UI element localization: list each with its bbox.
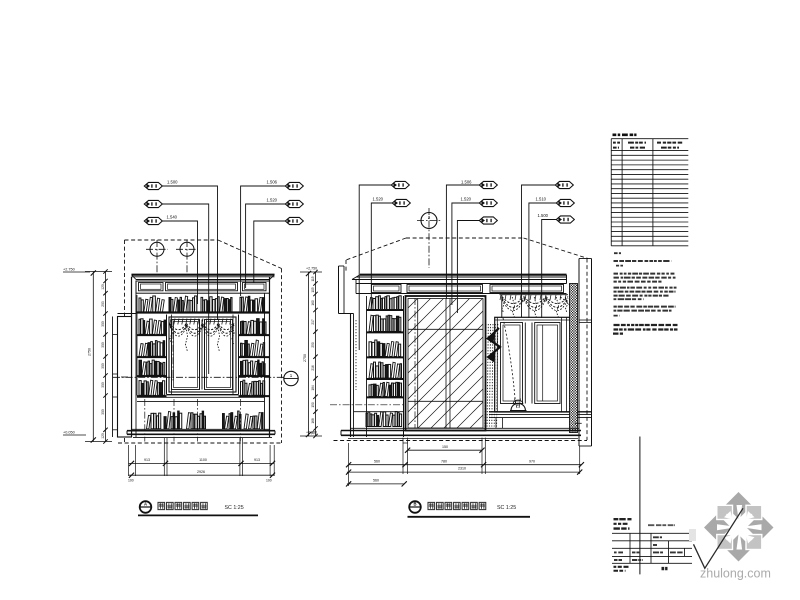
svg-text:2926: 2926 [197,470,205,474]
svg-text:+2.750: +2.750 [63,267,75,271]
svg-text:120: 120 [101,284,105,290]
svg-text:168: 168 [311,418,315,424]
svg-text:A: A [144,502,147,507]
svg-text:913: 913 [254,458,260,462]
svg-text:B: B [413,502,416,507]
svg-text:780: 780 [441,459,447,463]
svg-text:150: 150 [311,402,315,408]
svg-text:zhulong.com: zhulong.com [700,566,771,580]
svg-text:350: 350 [101,363,105,369]
svg-text:+0.050: +0.050 [63,431,75,435]
svg-text:150: 150 [442,445,448,449]
svg-text:913: 913 [144,458,150,462]
svg-text:1.520: 1.520 [267,197,278,202]
svg-text:184: 184 [311,385,315,391]
svg-text:B: B [517,402,520,407]
svg-text:2310: 2310 [458,467,466,471]
svg-text:1100: 1100 [199,458,207,462]
svg-text:100: 100 [266,479,272,483]
svg-text:1.520: 1.520 [373,196,384,201]
svg-text:1.506: 1.506 [461,179,472,184]
svg-text:250: 250 [311,342,315,348]
svg-text:350: 350 [101,342,105,348]
svg-text:120: 120 [101,433,105,439]
svg-text:+2.750: +2.750 [306,267,317,271]
svg-text:1.540: 1.540 [167,214,178,219]
svg-text:2750: 2750 [88,348,92,356]
svg-text:560: 560 [374,459,380,463]
svg-text:1.510: 1.510 [536,196,547,201]
svg-text:160: 160 [311,300,315,306]
svg-text:350: 350 [101,321,105,327]
svg-text:105: 105 [311,287,315,293]
svg-text:SC 1:25: SC 1:25 [497,505,516,511]
svg-text:203: 203 [101,301,105,307]
svg-text:216: 216 [311,365,315,371]
svg-text:1.506: 1.506 [267,179,278,184]
svg-text:115: 115 [311,276,315,281]
svg-text:100: 100 [128,479,134,483]
svg-text:217: 217 [311,319,315,325]
svg-text:1.500: 1.500 [167,179,178,184]
svg-text:560: 560 [373,478,379,482]
svg-text:2750: 2750 [303,354,307,362]
svg-text:1.500: 1.500 [538,213,549,218]
svg-text:+0.050: +0.050 [306,430,317,434]
svg-text:970: 970 [529,459,535,463]
svg-text:350: 350 [101,382,105,388]
svg-text:SC 1:25: SC 1:25 [225,505,244,511]
svg-text:1.520: 1.520 [461,196,472,201]
svg-text:350: 350 [101,409,105,415]
